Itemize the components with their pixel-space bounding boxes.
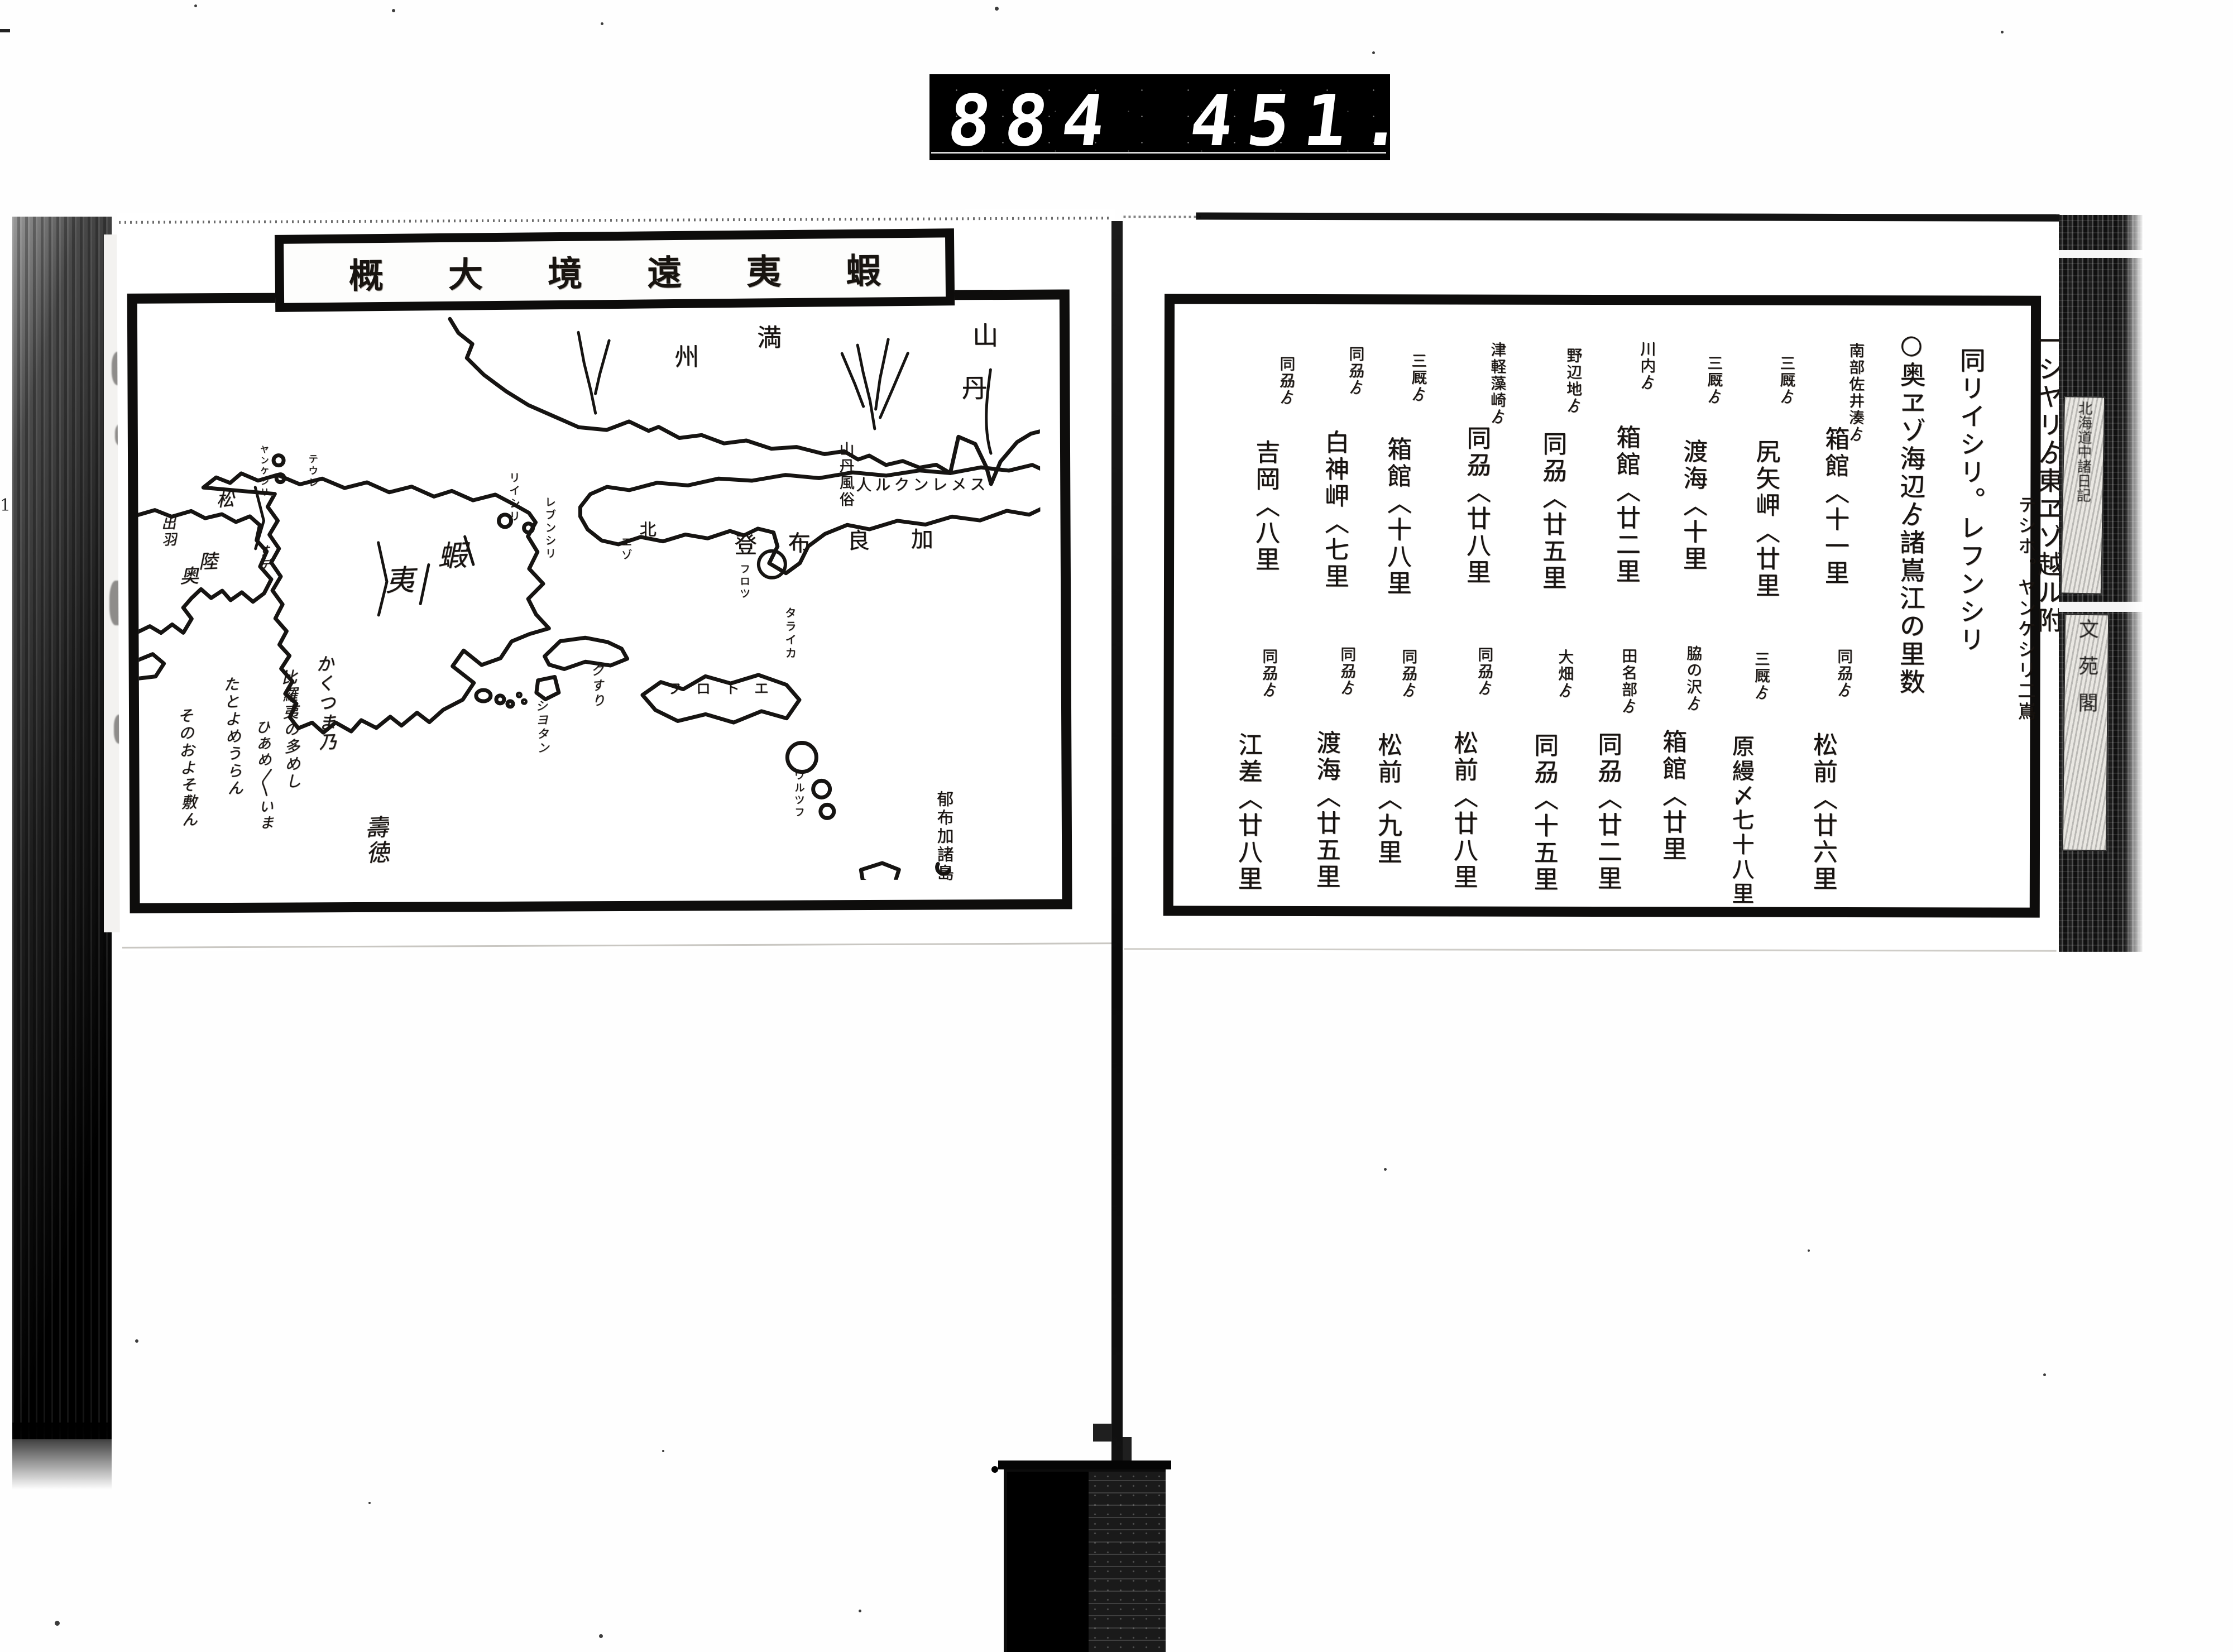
distance-entry: 脇の沢ゟ箱館〈廿里 xyxy=(1659,645,1702,863)
entry-origin: 三厩ゟ xyxy=(1705,355,1722,572)
entry-origin: 同刕ゟ xyxy=(1400,648,1417,866)
clamp-textured-side xyxy=(1089,1472,1166,1652)
entry-origin: 同刕ゟ xyxy=(1278,356,1295,573)
entry-origin: 同刕ゟ xyxy=(1260,648,1277,893)
map-title-box: 概大境遠夷蝦 xyxy=(275,228,955,312)
map-annotation-text: 奥 xyxy=(179,567,199,587)
spine-label-top: 北海道中諸日記 xyxy=(2061,396,2105,594)
map-place-label: ウルツフ xyxy=(792,770,803,819)
map-place-label: 郁布加諸島 xyxy=(935,790,952,882)
distance-entry: 三厩ゟ尻矢岬〈廿里 xyxy=(1752,355,1795,600)
map-annotation-text: 比羅夷の多めし xyxy=(280,669,301,791)
map-annotation-text: 出羽 xyxy=(159,515,175,548)
dust-speck xyxy=(1384,1168,1387,1171)
map-annotation-text: 壽徳 xyxy=(362,815,389,866)
distance-entry: 野辺地ゟ同刕〈廿五里 xyxy=(1539,347,1582,592)
title-char: 大 xyxy=(448,246,483,297)
page-top-edge xyxy=(1196,213,2059,222)
dust-speck xyxy=(2043,1373,2046,1376)
map-annotation-text: たとよめうらん xyxy=(222,676,243,798)
distance-entry: 田名部ゟ同刕〈廿二里 xyxy=(1594,648,1637,892)
entry-destination-distance: 白神岬〈七里 xyxy=(1321,346,1348,590)
counter-right-digits: 451. xyxy=(1186,80,1423,162)
page-top-edge xyxy=(119,217,1110,224)
entry-destination-distance: 箱館〈廿二里 xyxy=(1612,341,1639,585)
entry-origin: 同刕ゟ xyxy=(1347,346,1364,590)
dust-speck xyxy=(2001,31,2004,33)
distance-entry: 三厩ゟ渡海〈十里 xyxy=(1679,355,1722,572)
entry-destination-distance: 同刕〈廿八里 xyxy=(1463,342,1489,586)
title-char: 蝦 xyxy=(846,242,881,293)
entry-origin: 川内ゟ xyxy=(1638,341,1656,585)
dust-speck xyxy=(1372,51,1375,54)
map-place-label: フロトエ xyxy=(667,682,783,697)
entry-destination-distance: 尻矢岬〈廿里 xyxy=(1752,355,1779,600)
entry-destination-distance: 松前〈九里 xyxy=(1374,648,1400,866)
map-coastlines xyxy=(137,300,1042,883)
entry-origin: 大畑ゟ xyxy=(1556,649,1573,893)
map-annotation-text: 夷 xyxy=(385,566,415,597)
intro-subtext: テシホ。ヤンケシリ二嶌 xyxy=(2015,328,2035,722)
map-place-label: 山 xyxy=(972,322,998,349)
dust-speck xyxy=(135,1339,138,1343)
title-char: 夷 xyxy=(746,243,782,294)
map-annotation-text: かくつま乃 xyxy=(314,654,336,753)
distance-entry: 大畑ゟ同刕〈十五里 xyxy=(1530,649,1573,893)
entry-destination-distance: 松前〈廿八里 xyxy=(1450,646,1477,890)
edge-mark xyxy=(0,29,10,32)
sheet-number: 1 xyxy=(0,496,15,515)
map-place-label: 丹 xyxy=(961,375,987,401)
microfilm-scan: 884 451. 1 xyxy=(0,0,2233,1652)
dust-speck xyxy=(1808,1249,1810,1252)
map-annotation-text: 陸 xyxy=(198,552,218,573)
clamp-dark-side xyxy=(1007,1472,1089,1652)
left-page: 山丹満州山丹風俗人ルクンレメス加良布登北エゾフロツタライカ蝦夷リイシリレブンシリ… xyxy=(117,209,1118,951)
page-top-edge-dust xyxy=(1123,216,1201,218)
entry-destination-distance: 江差〈廿八里 xyxy=(1234,648,1261,893)
map-place-label: 人ルクンレメス xyxy=(856,476,989,493)
dust-speck xyxy=(194,4,197,7)
crease-notch xyxy=(1123,1437,1132,1464)
entry-destination-distance: 箱館〈十一里 xyxy=(1821,342,1848,587)
page-gap xyxy=(2059,250,2143,258)
spine-label-bottom: 文苑閣 xyxy=(2062,614,2109,851)
intro-text: 同リイシリ。レフンシリ xyxy=(1957,347,1985,654)
map-place-label: フロツ xyxy=(738,563,749,600)
entry-origin: 三厩ゟ xyxy=(1778,355,1795,600)
page-gap xyxy=(2059,602,2143,612)
list-intro-column: ○奥ヱゾ海辺ゟ諸嶌江の里数 xyxy=(1897,329,1925,696)
intro-text: ○奥ヱゾ海辺ゟ諸嶌江の里数 xyxy=(1897,329,1925,696)
distance-entry: 同刕ゟ白神岬〈七里 xyxy=(1321,346,1364,590)
distance-entry: 三厩ゟ箱館〈十八里 xyxy=(1383,352,1426,597)
dust-speck xyxy=(995,7,999,11)
map-place-label: テウレ xyxy=(306,453,317,489)
map-place-label: 北 xyxy=(640,521,657,539)
entry-origin: 三厩ゟ xyxy=(1752,651,1770,907)
distance-entry: 同刕ゟ松前〈廿六里 xyxy=(1809,648,1852,893)
distance-entry: 川内ゟ箱館〈廿二里 xyxy=(1612,341,1655,585)
entry-destination-distance: 原縵〆七十八里 xyxy=(1729,651,1753,907)
distance-entry: 同刕ゟ松前〈廿八里 xyxy=(1450,646,1493,890)
entry-destination-distance: 同刕〈廿二里 xyxy=(1594,648,1621,892)
entry-destination-distance: 渡海〈廿五里 xyxy=(1312,646,1339,890)
map-place-label: タライカ xyxy=(784,607,796,660)
map-annotation-text: 蝦 xyxy=(437,540,467,572)
title-char: 境 xyxy=(548,246,583,296)
map-place-label: エゾ xyxy=(620,536,631,562)
map-area: 山丹満州山丹風俗人ルクンレメス加良布登北エゾフロツタライカ蝦夷リイシリレブンシリ… xyxy=(137,300,1042,883)
spine-label-bottom-text: 文苑閣 xyxy=(2071,619,2101,730)
distance-list: 一シヤリゟ東ヱゾ越ル附テシホ。ヤンケシリ二嶌同リイシリ。レフンシリ○奥ヱゾ海辺ゟ… xyxy=(1123,210,2059,212)
entry-destination-distance: 同刕〈十五里 xyxy=(1530,649,1557,893)
entry-destination-distance: 松前〈廿六里 xyxy=(1809,648,1836,893)
crease-notch xyxy=(1093,1424,1112,1442)
distance-entry: 同刕ゟ江差〈廿八里 xyxy=(1234,648,1277,893)
map-annotation-text: クすり xyxy=(588,663,603,709)
entry-destination-distance: 箱館〈廿里 xyxy=(1659,645,1685,863)
map-place-label: 布 xyxy=(788,531,811,555)
map-place-label: 登 xyxy=(735,534,757,557)
right-page: 一シヤリゟ東ヱゾ越ル附テシホ。ヤンケシリ二嶌同リイシリ。レフンシリ○奥ヱゾ海辺ゟ… xyxy=(1122,210,2060,955)
distance-entry: 南部佐井湊ゟ箱館〈十一里 xyxy=(1821,342,1864,587)
dust-speck xyxy=(368,1502,371,1504)
entry-origin: 脇の沢ゟ xyxy=(1685,645,1702,863)
entry-origin: 同刕ゟ xyxy=(1475,647,1493,891)
entry-origin: 南部佐井湊ゟ xyxy=(1847,342,1865,587)
entry-origin: 津軽藻崎ゟ xyxy=(1489,342,1506,586)
map-annotation-text: そのおよそ敷ん xyxy=(176,707,197,829)
map-annotation-text: 松 xyxy=(216,490,234,510)
distance-entry: 同刕ゟ渡海〈廿五里 xyxy=(1312,646,1355,890)
scan-edge-shadow xyxy=(12,217,112,1439)
map-place-label: 良 xyxy=(847,529,870,553)
page-bottom-edge xyxy=(122,942,1114,949)
map-place-label: リイシリ xyxy=(507,472,519,523)
distance-entry: 津軽藻崎ゟ同刕〈廿八里 xyxy=(1463,342,1506,586)
entry-origin: 田名部ゟ xyxy=(1619,648,1637,892)
distance-entry: 同刕ゟ松前〈九里 xyxy=(1374,648,1417,866)
map-place-label: 山丹風俗 xyxy=(837,441,853,508)
entry-origin: 野辺地ゟ xyxy=(1565,347,1582,592)
dust-speck xyxy=(392,9,395,12)
clamp-dot xyxy=(991,1466,998,1473)
list-intro-column: 同リイシリ。レフンシリ xyxy=(1957,347,1985,654)
map-annotation-text: シヨタン xyxy=(533,699,548,755)
title-char: 概 xyxy=(348,247,384,298)
distance-entry: 同刕ゟ吉岡〈八里 xyxy=(1252,356,1295,573)
map-annotation-text: ひあめ〳〵いま xyxy=(253,719,273,831)
page-bottom-edge xyxy=(1124,948,2057,951)
counter-left-digits: 884 xyxy=(943,80,1124,162)
map-annotation-text: すデ xyxy=(256,544,270,572)
dust-speck xyxy=(599,1634,603,1638)
entry-origin: 同刕ゟ xyxy=(1835,648,1852,893)
map-place-label: レブンシリ xyxy=(543,496,555,560)
entry-destination-distance: 同刕〈廿五里 xyxy=(1539,347,1565,592)
spine-label-top-text: 北海道中諸日記 xyxy=(2072,401,2095,503)
entry-origin: 三厩ゟ xyxy=(1410,352,1427,597)
entry-destination-distance: 渡海〈十里 xyxy=(1679,355,1705,572)
dust-speck xyxy=(55,1621,60,1626)
film-clamp xyxy=(1004,1464,1166,1652)
map-place-label: ヤンケシリ xyxy=(258,445,268,498)
map-place-label: 満 xyxy=(757,325,782,351)
map-place-label: 州 xyxy=(674,344,699,370)
distance-entry: 三厩ゟ原縵〆七十八里 xyxy=(1729,651,1770,907)
entry-destination-distance: 吉岡〈八里 xyxy=(1252,356,1278,573)
dust-speck xyxy=(859,1610,861,1612)
counter-divider-line xyxy=(931,152,1386,154)
entry-origin: 同刕ゟ xyxy=(1338,646,1355,890)
map-place-label: 加 xyxy=(911,528,933,552)
dust-speck xyxy=(662,1450,664,1452)
dust-speck xyxy=(601,22,603,25)
entry-destination-distance: 箱館〈十八里 xyxy=(1383,352,1410,597)
center-crease-bar xyxy=(1111,221,1123,1471)
frame-counter-display: 884 451. xyxy=(929,74,1390,160)
title-char: 遠 xyxy=(647,245,682,295)
list-intro-column: 一シヤリゟ東ヱゾ越ル附テシホ。ヤンケシリ二嶌 xyxy=(2015,328,2062,722)
clamp-top-edge xyxy=(998,1461,1171,1469)
